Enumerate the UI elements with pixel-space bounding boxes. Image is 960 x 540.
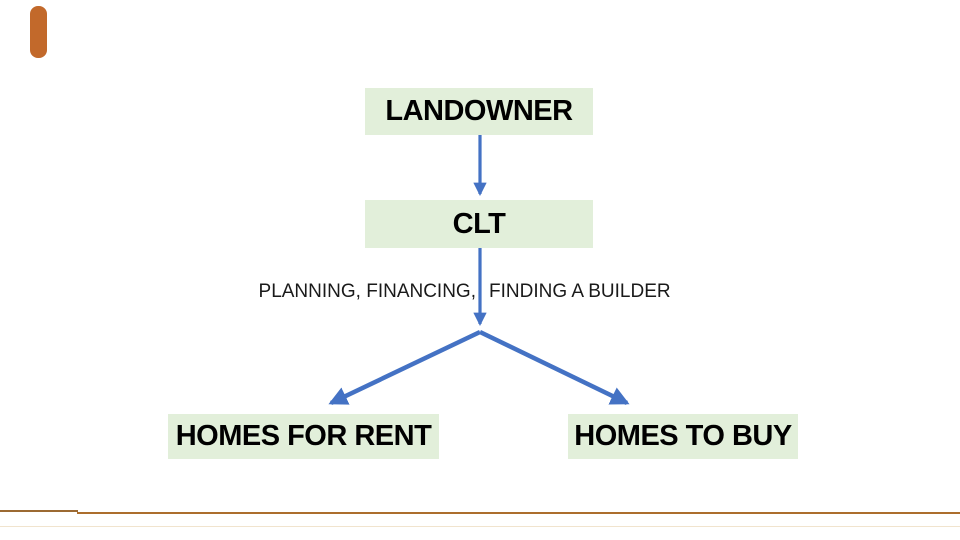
arrow-branch-to-homes-to-buy (480, 332, 627, 403)
caption-planning-financing: PLANNING, FINANCING, (259, 281, 476, 303)
footer-accent-line-right (77, 512, 960, 514)
connector-arrows (0, 0, 960, 540)
footer-accent-line-faint (0, 526, 960, 527)
node-landowner: LANDOWNER (365, 88, 593, 135)
footer-accent-line-left (0, 510, 78, 512)
node-homes-for-rent: HOMES FOR RENT (168, 414, 439, 459)
node-homes-to-buy: HOMES TO BUY (568, 414, 798, 459)
caption-finding-a-builder: FINDING A BUILDER (489, 281, 671, 303)
node-clt: CLT (365, 200, 593, 248)
slide-canvas: LANDOWNER CLT PLANNING, FINANCING, FINDI… (0, 0, 960, 540)
arrow-branch-to-homes-for-rent (331, 332, 480, 403)
